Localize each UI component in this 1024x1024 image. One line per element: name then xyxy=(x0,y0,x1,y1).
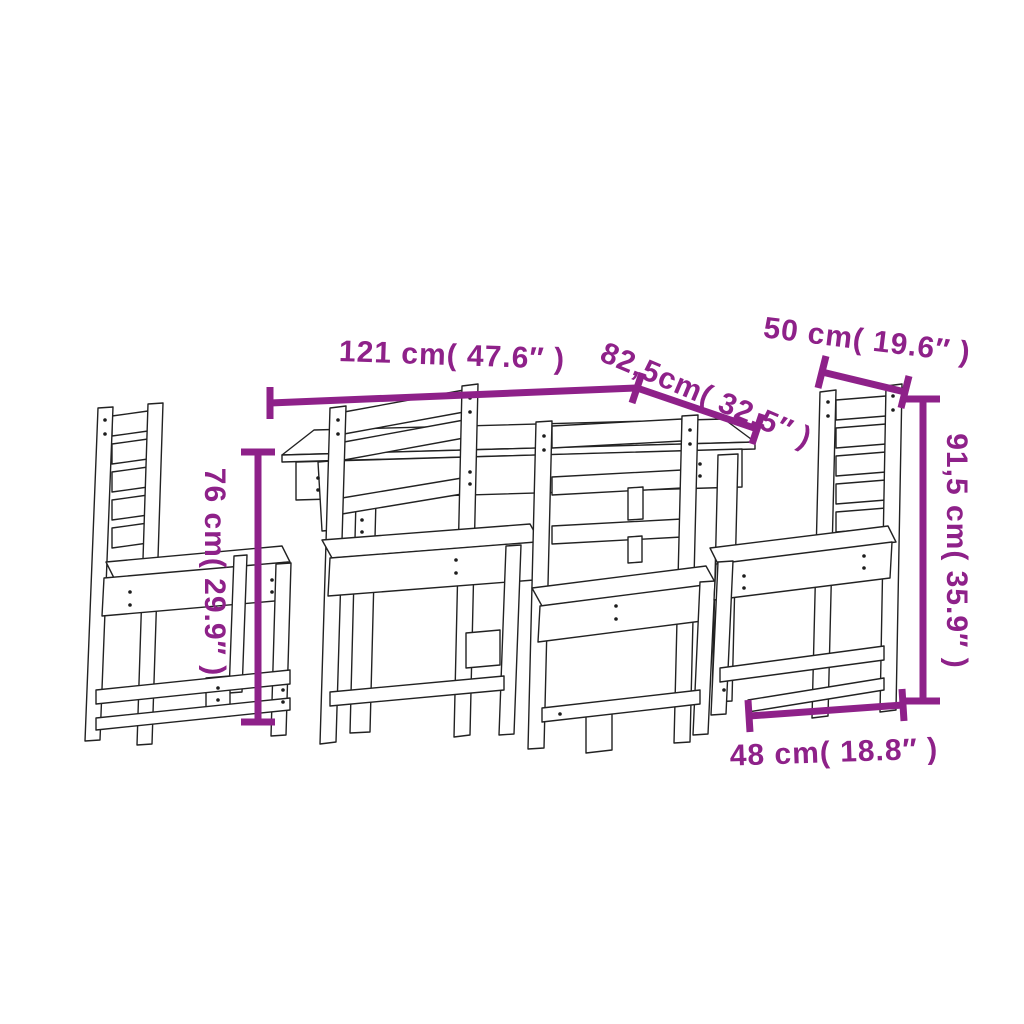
dimension-label-chair-depth: 48 cm( 18.8″ ) xyxy=(729,732,939,773)
dim-tick xyxy=(902,689,904,721)
dim-tick xyxy=(901,376,909,408)
dim-tick xyxy=(818,356,826,388)
dimension-diagram: 121 cm( 47.6″ ) 82,5cm( 32.5″ ) 50 cm( 1… xyxy=(0,0,1024,1024)
dimension-label-table-height: 76 cm( 29.9″ ) xyxy=(197,468,231,676)
dimension-label-chair-height: 91,5 cm( 35.9″ ) xyxy=(939,433,973,669)
furniture-line-drawing xyxy=(0,0,1024,1024)
dim-line-chair-back-width xyxy=(822,372,905,392)
dim-tick xyxy=(748,700,750,732)
